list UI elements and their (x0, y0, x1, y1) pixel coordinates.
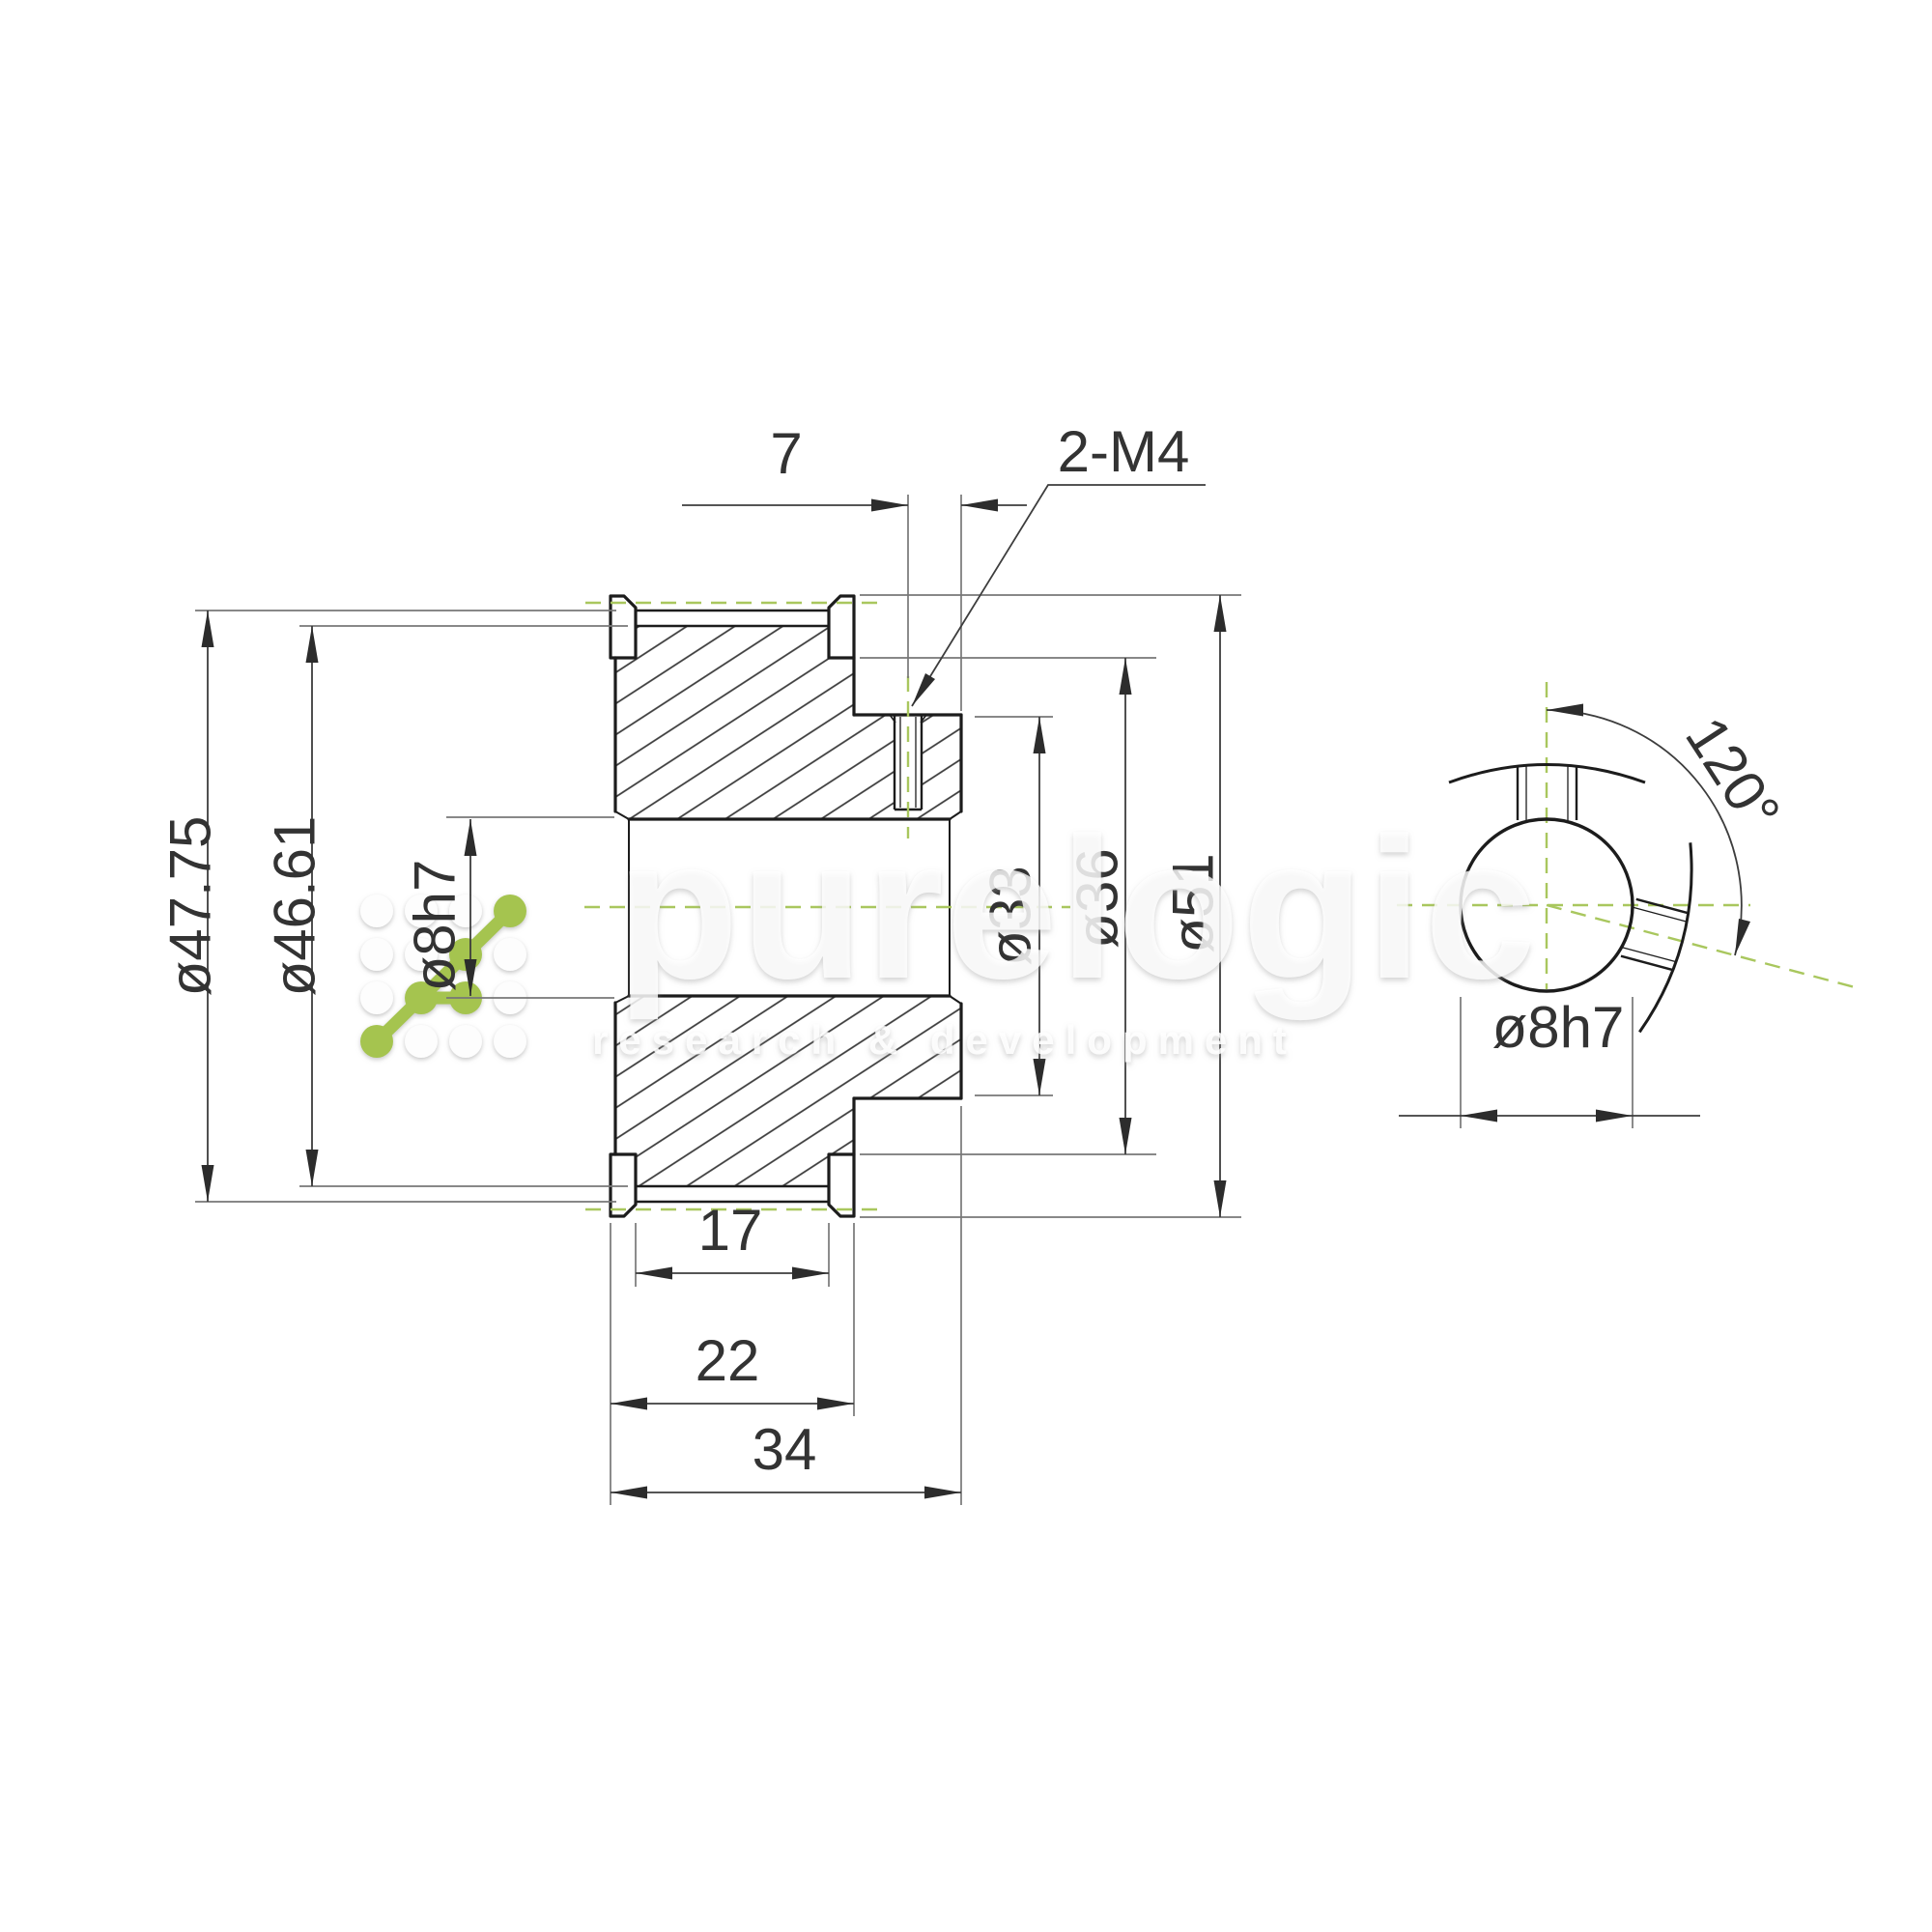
dim-outside-diameter: ø47.75 (158, 816, 223, 997)
dim-setscrew-thread: 2-M4 (1058, 419, 1190, 484)
dim-belt-width: 17 (698, 1198, 763, 1263)
watermark-tagline: research & development (592, 1017, 1297, 1063)
technical-drawing: ø47.75 ø46.61 ø8h7 ø33 ø36 ø51 7 2-M4 17… (0, 0, 1932, 1932)
drawing-page: ø47.75 ø46.61 ø8h7 ø33 ø36 ø51 7 2-M4 17… (0, 0, 1932, 1932)
dim-flange-width: 22 (696, 1328, 760, 1393)
dim-overall-length: 34 (753, 1417, 817, 1482)
dim-root-diameter: ø46.61 (263, 816, 327, 997)
watermark-brand: purelogic (616, 797, 1538, 1021)
dim-bore-section: ø8h7 (403, 860, 468, 992)
dim-setscrew-offset: 7 (770, 421, 802, 486)
